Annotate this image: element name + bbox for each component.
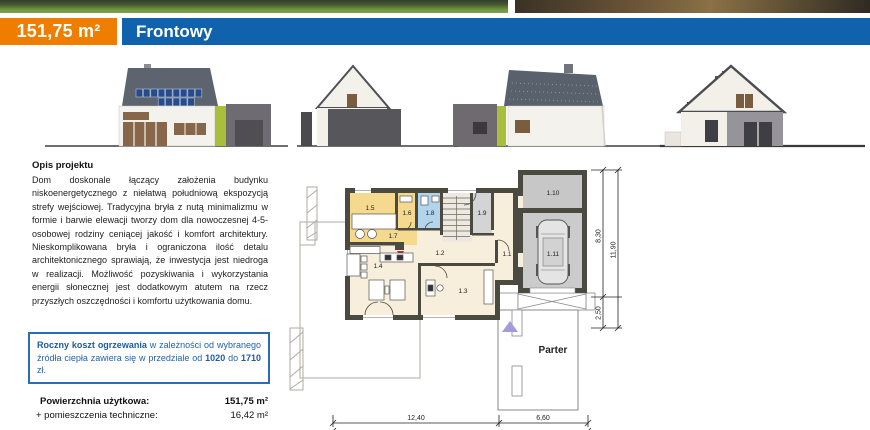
area-label: + pomieszczenia techniczne:	[32, 410, 158, 421]
heating-cost-to: 1710	[241, 353, 261, 363]
area-row-technical: + pomieszczenia techniczne: 16,42 m²	[32, 410, 268, 421]
room-label-1-8: 1.8	[425, 210, 434, 217]
room-label-1-4: 1.4	[373, 263, 382, 270]
heating-cost-note: Roczny koszt ogrzewania w zależności od …	[28, 332, 270, 384]
area-badge: 151,75 m²	[0, 18, 117, 45]
dim-height-drive: 2,50	[596, 306, 603, 320]
heating-note-end: zł.	[37, 365, 46, 375]
room-label-1-6: 1.6	[402, 210, 411, 217]
elevation-rear	[660, 62, 865, 162]
driveway: Parter	[493, 293, 595, 410]
heating-cost-from: 1020	[205, 353, 225, 363]
room-label-1-2: 1.2	[435, 250, 444, 257]
photo-garden-left	[0, 0, 508, 13]
dim-height-main: 8,30	[596, 229, 603, 243]
room-label-1-10: 1.10	[547, 190, 560, 197]
room-label-1-3: 1.3	[458, 288, 467, 295]
area-value: 151,75 m²	[225, 396, 268, 407]
description-body: Dom doskonale łączący założenia budynku …	[32, 174, 268, 308]
floor-plan: Parter	[285, 158, 635, 430]
area-label: Powierzchnia użytkowa:	[32, 396, 149, 407]
area-summary: Powierzchnia użytkowa: 151,75 m² + pomie…	[32, 396, 268, 424]
garage-block	[518, 170, 587, 293]
elevation-side-right	[452, 62, 667, 162]
floor-label: Parter	[539, 345, 568, 356]
room-label-1-5: 1.5	[365, 205, 374, 212]
area-value: 16,42 m²	[231, 410, 269, 421]
area-row-usable: Powierzchnia użytkowa: 151,75 m²	[32, 396, 268, 407]
photo-garden-right	[515, 0, 870, 13]
room-label-1-1: 1.1	[502, 251, 511, 258]
room-label-1-9: 1.9	[477, 210, 486, 217]
description-heading: Opis projektu	[32, 160, 268, 171]
dim-height-total: 11,90	[611, 241, 618, 258]
elevation-side-left	[295, 62, 460, 162]
page-title: Frontowy	[122, 18, 870, 45]
elevation-front	[40, 62, 290, 162]
heating-note-lead: Roczny koszt ogrzewania	[37, 340, 147, 350]
room-label-1-7: 1.7	[388, 233, 397, 240]
dim-width-main: 12,40	[407, 415, 425, 422]
room-label-1-11: 1.11	[547, 251, 560, 258]
dim-width-garage: 6,60	[536, 415, 550, 422]
brochure-page: { "header": { "area_badge": "151,75 m²",…	[0, 0, 870, 430]
heating-note-to-word: do	[225, 353, 241, 363]
